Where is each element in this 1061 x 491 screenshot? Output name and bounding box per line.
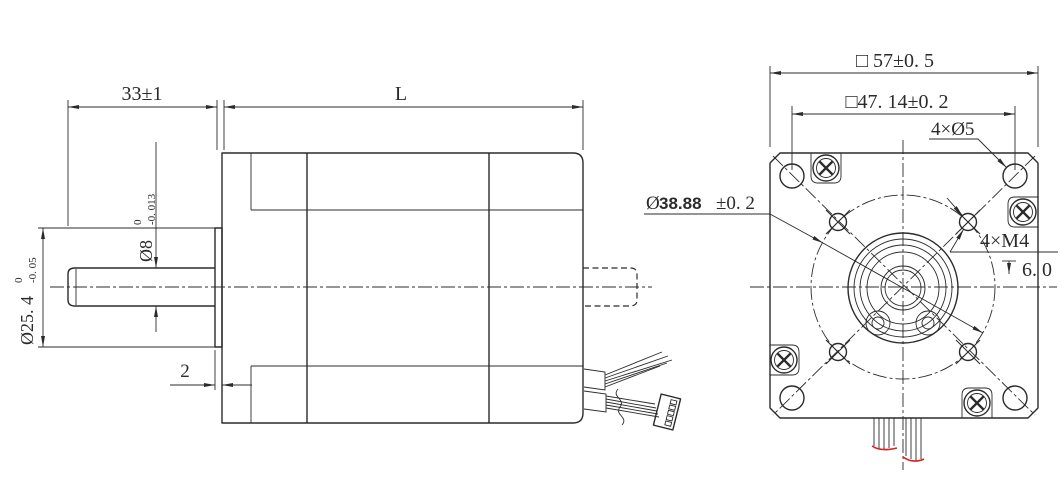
dim-tapped-holes: 4×M4 6. 0 [947, 198, 1058, 281]
dim-tapped-holes-label: 4×M4 [980, 230, 1029, 252]
dim-bolt-circle-tol: ±0. 2 [716, 193, 755, 214]
wire-tip-red [872, 446, 897, 450]
wire-bundle-upper [605, 352, 672, 387]
case-screw [962, 388, 992, 418]
dim-shaft-diameter-label: Ø8 [136, 240, 156, 262]
dim-hole-spacing-label: □47. 14±0. 2 [845, 91, 948, 113]
tapped-hole [956, 210, 980, 234]
dim-tap-depth-label: 6. 0 [1022, 259, 1052, 281]
corner-hole [1003, 386, 1027, 410]
side-view: 33±1 L Ø8 0 -0. 013 Ø25. 4 0 [13, 83, 681, 430]
pilot-boss [215, 228, 222, 347]
phillips-icon [1017, 206, 1029, 218]
tapped-hole [826, 210, 850, 234]
tapped-hole [956, 340, 980, 364]
lead-wires [584, 352, 681, 430]
dim-body-length: L [224, 83, 583, 150]
motor-body [222, 153, 583, 423]
dim-boss-diameter-tol-upper: 0 [13, 277, 25, 283]
case-screw [1008, 197, 1038, 227]
depth-symbol-icon [1002, 261, 1016, 274]
dim-bolt-circle-prefix: Ø [646, 193, 660, 214]
connector-5pin [653, 394, 680, 430]
dim-body-length-label: L [395, 83, 407, 105]
tapped-hole [826, 340, 850, 364]
front-lead-wires [872, 418, 924, 461]
dim-boss-protrusion: 2 [170, 350, 252, 390]
wire-bundle-lower [606, 396, 659, 417]
drawing-canvas: 33±1 L Ø8 0 -0. 013 Ø25. 4 0 [0, 0, 1061, 491]
dim-shaft-diameter-tol-lower: -0. 013 [146, 193, 158, 225]
corner-hole [780, 386, 804, 410]
dim-corner-holes: 4×Ø5 [929, 119, 1007, 168]
wire-grommet-upper [584, 369, 605, 390]
dim-boss-diameter-label: Ø25. 4 [17, 296, 37, 345]
centerlines [750, 140, 1057, 470]
dim-shaft-extension: 33±1 [68, 83, 217, 226]
case-screw [811, 153, 841, 183]
dim-boss-diameter: Ø25. 4 0 -0. 05 [13, 228, 215, 347]
phillips-icon [820, 162, 832, 174]
dim-frame-size-label: □ 57±0. 5 [856, 50, 934, 72]
dim-bolt-circle-value: 38.88 [659, 194, 702, 213]
dim-shaft-diameter-tol-upper: 0 [132, 219, 144, 225]
dim-boss-diameter-tol-lower: -0. 05 [27, 257, 39, 283]
dim-boss-protrusion-label: 2 [180, 361, 190, 382]
front-view: □ 57±0. 5 □47. 14±0. 2 4×Ø5 Ø 38.88 ±0. … [644, 50, 1058, 470]
dim-shaft-diameter: Ø8 0 -0. 013 [132, 142, 158, 332]
wire-grommet-lower [584, 391, 606, 412]
case-screw [770, 345, 799, 375]
phillips-icon [971, 397, 983, 409]
phillips-icon [778, 354, 790, 366]
dim-shaft-extension-label: 33±1 [122, 83, 163, 105]
dim-corner-holes-label: 4×Ø5 [931, 119, 974, 140]
dimension-drawing: 33±1 L Ø8 0 -0. 013 Ø25. 4 0 [0, 0, 1061, 491]
